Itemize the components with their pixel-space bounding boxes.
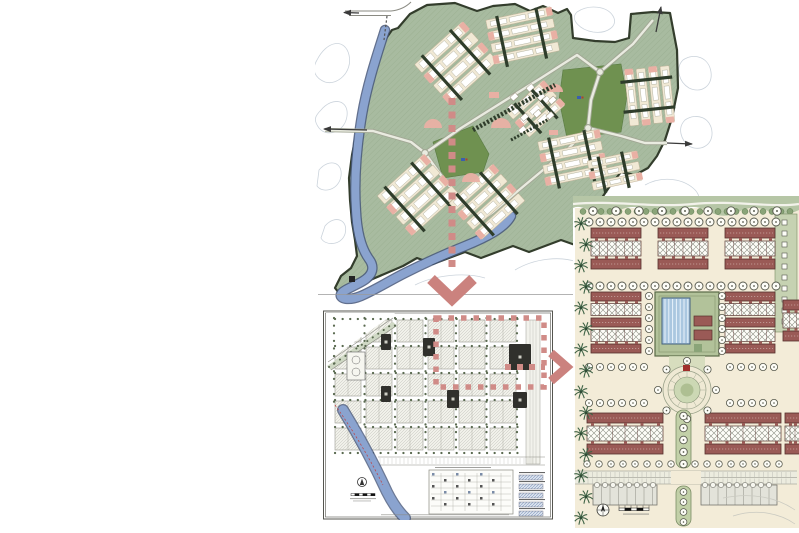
district-plan-sheet <box>323 310 553 520</box>
retail-row <box>701 482 777 505</box>
apartment-block-group <box>783 300 799 341</box>
district-drawing <box>324 311 553 519</box>
clubhouse <box>694 316 712 326</box>
sheet-footer-microtext <box>381 514 509 515</box>
plaza-kiosk <box>683 365 690 371</box>
courtyard <box>655 292 719 356</box>
legend-table <box>429 467 513 514</box>
apartment-block-group <box>725 228 775 269</box>
titleblock-microtext <box>519 472 545 473</box>
apartment-block-group <box>725 292 775 353</box>
apartment-block-group <box>658 228 708 269</box>
scale-microtext <box>623 514 649 515</box>
east-exit-arrow <box>667 143 692 144</box>
north-arrow-icon <box>358 478 367 487</box>
northwest-exit-arrow <box>344 13 359 14</box>
titleblock-microtext <box>519 508 545 509</box>
south-road <box>575 471 797 484</box>
retail-row <box>593 482 657 505</box>
scale-microtext <box>350 498 376 499</box>
titleblock-microtext <box>519 481 545 482</box>
park-pavilion-icon <box>577 96 581 99</box>
apartment-block-group <box>591 228 641 269</box>
apartment-block-group <box>587 413 663 454</box>
peninsula-building <box>349 276 355 282</box>
titleblock-microtext <box>519 499 545 500</box>
apartment-block-group <box>705 413 781 454</box>
titleblock-microtext <box>519 490 545 491</box>
roundabout <box>585 125 592 132</box>
detail-block-plan <box>573 196 799 533</box>
circular-plaza <box>663 365 711 414</box>
apartment-block-group <box>785 413 799 454</box>
detail-drawing <box>573 196 799 533</box>
apartment-block-group <box>591 292 641 353</box>
park-pavilion-icon <box>461 158 465 161</box>
roundabout <box>597 69 604 76</box>
legend-title-microtext <box>435 467 491 468</box>
compass-icon <box>597 504 609 516</box>
plan-collage <box>0 0 799 533</box>
arrow-right-head <box>551 353 567 381</box>
